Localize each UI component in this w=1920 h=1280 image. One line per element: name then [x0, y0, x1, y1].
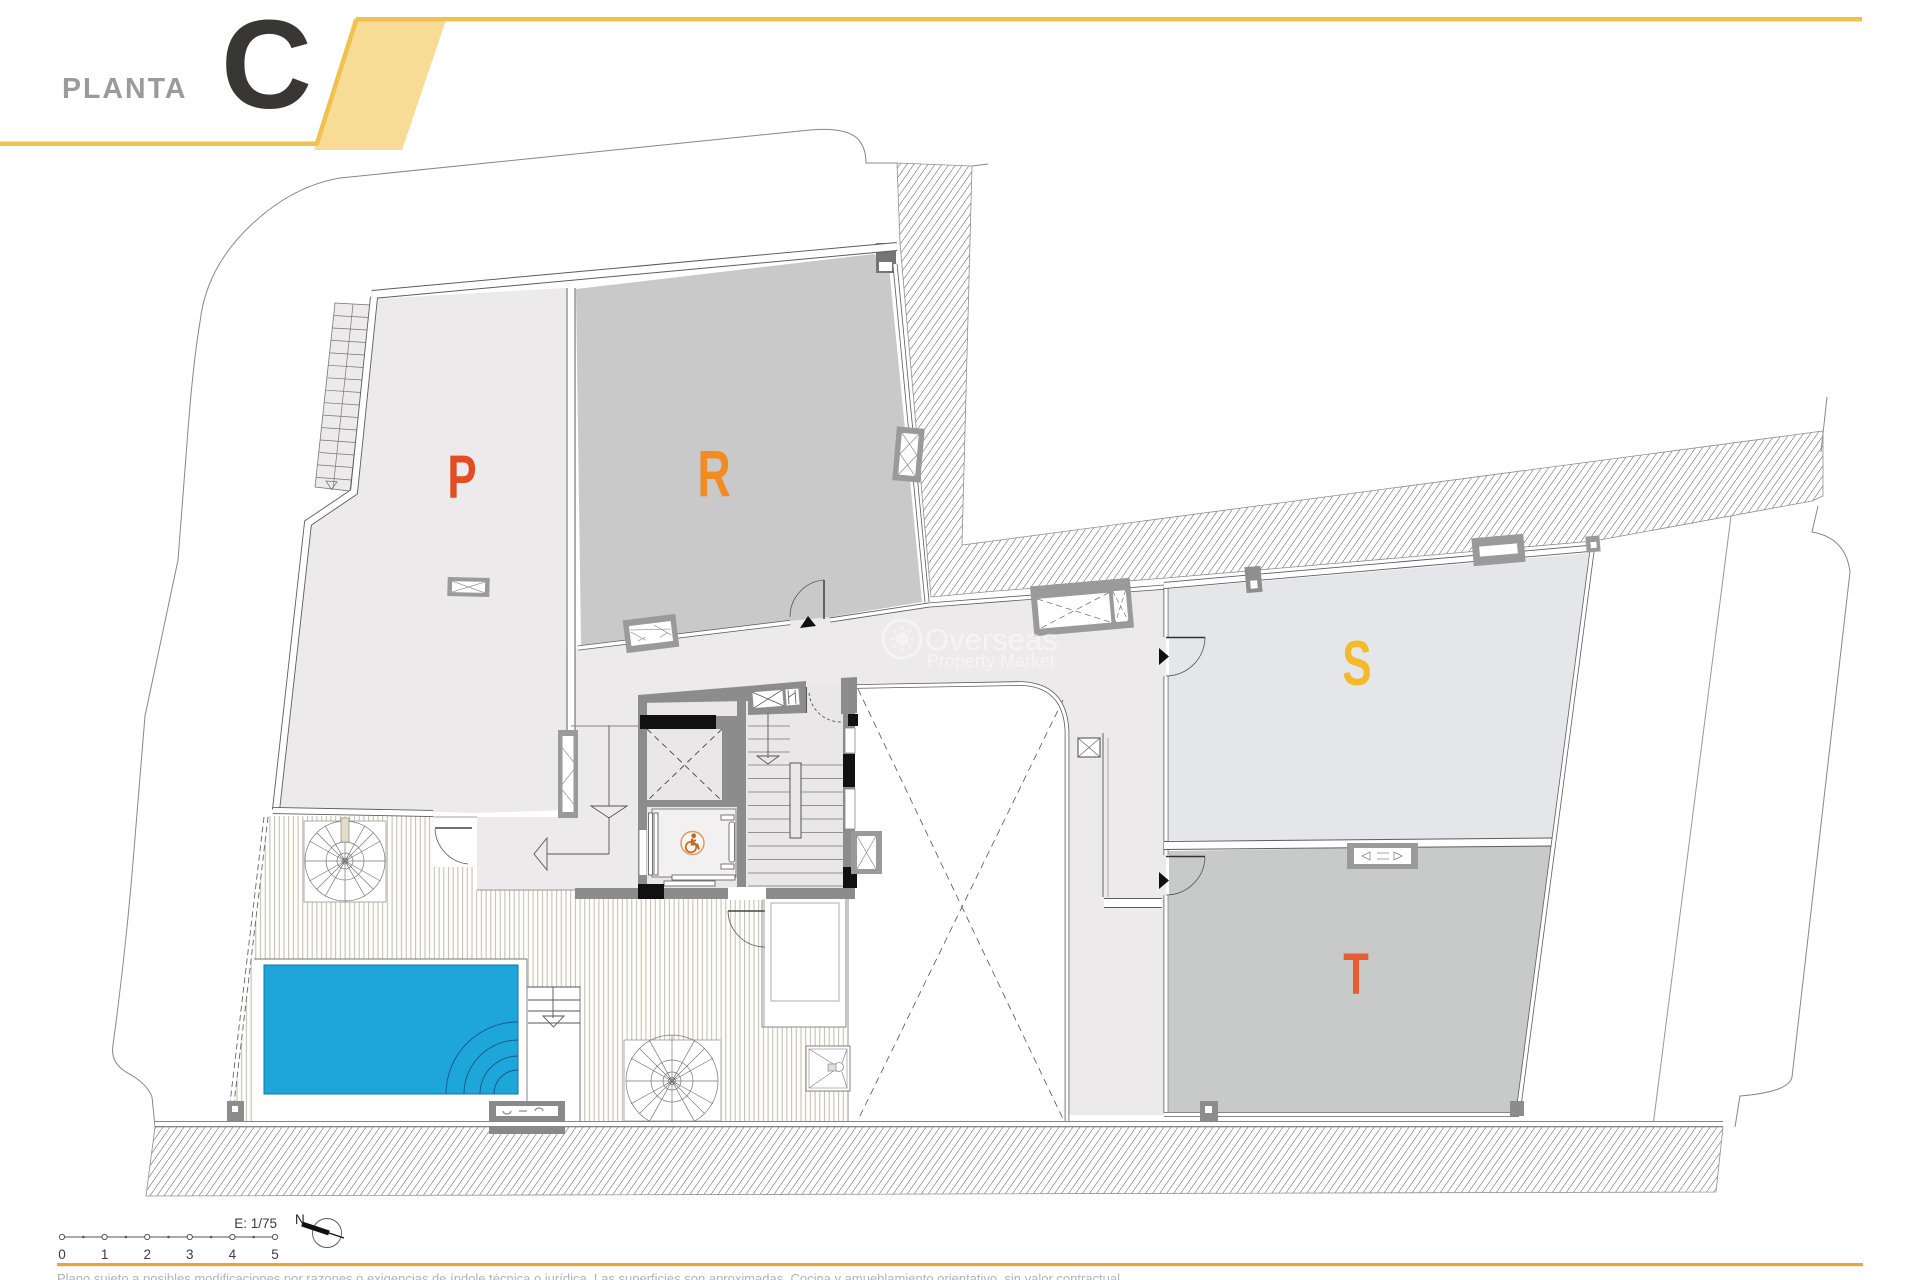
svg-text:P: P	[447, 444, 476, 512]
svg-text:2: 2	[143, 1247, 151, 1262]
svg-text:T: T	[1343, 941, 1369, 1006]
svg-text:E: 1/75: E: 1/75	[234, 1216, 277, 1231]
svg-text:4: 4	[229, 1247, 237, 1262]
svg-text:R: R	[697, 437, 730, 511]
svg-text:S: S	[1342, 628, 1371, 699]
svg-text:PLANTA: PLANTA	[62, 73, 187, 105]
svg-text:0: 0	[58, 1247, 66, 1262]
svg-text:Plano sujeto a posibles modifi: Plano sujeto a posibles modificaciones p…	[57, 1271, 1120, 1280]
svg-text:5: 5	[271, 1247, 279, 1262]
svg-text:Property Market: Property Market	[927, 651, 1055, 671]
svg-text:3: 3	[186, 1247, 194, 1262]
svg-text:C: C	[221, 0, 312, 135]
svg-text:1: 1	[101, 1247, 109, 1262]
